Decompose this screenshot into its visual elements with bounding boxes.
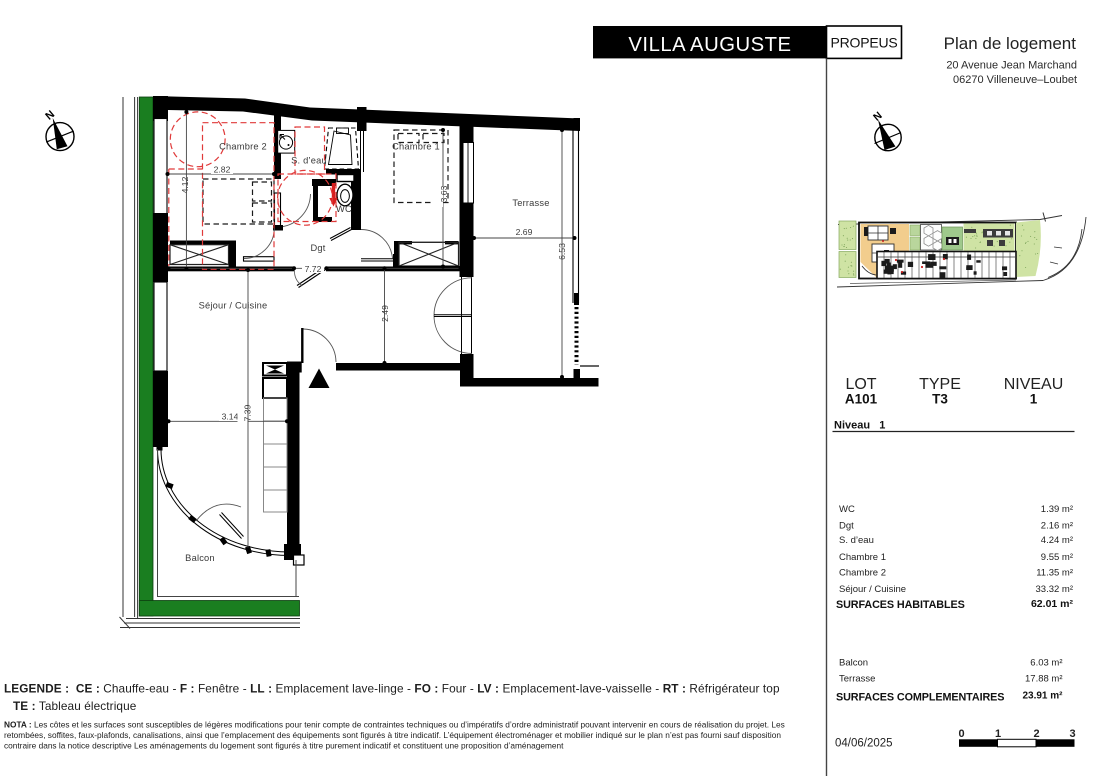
svg-text:2.82: 2.82 (214, 165, 231, 175)
svg-text:S. d’eau: S. d’eau (839, 535, 874, 546)
svg-text:2: 2 (1033, 728, 1039, 740)
svg-text:N: N (871, 110, 885, 124)
svg-text:SURFACES HABITABLES: SURFACES HABITABLES (836, 599, 965, 611)
svg-text:23.91 m²: 23.91 m² (1022, 691, 1063, 702)
svg-text:2.49: 2.49 (380, 305, 390, 322)
svg-text:1.39 m²: 1.39 m² (1041, 504, 1073, 515)
svg-text:62.01 m²: 62.01 m² (1031, 598, 1074, 610)
svg-text:06270 Villeneuve–Loubet: 06270 Villeneuve–Loubet (953, 74, 1077, 86)
svg-text:Plan de logement: Plan de logement (944, 34, 1077, 53)
svg-text:NIVEAU: NIVEAU (1004, 376, 1064, 393)
svg-text:11.35 m²: 11.35 m² (1036, 568, 1073, 579)
svg-text:Terrasse: Terrasse (512, 198, 549, 208)
svg-text:Dgt: Dgt (310, 243, 325, 253)
svg-text:SURFACES COMPLEMENTAIRES: SURFACES COMPLEMENTAIRES (836, 692, 1004, 704)
svg-text:Séjour / Cuisine: Séjour / Cuisine (839, 584, 906, 595)
svg-text:WC: WC (839, 504, 855, 515)
svg-text:Chambre 1: Chambre 1 (392, 142, 440, 152)
svg-text:Balcon: Balcon (185, 553, 215, 563)
svg-text:Séjour / Cuisine: Séjour / Cuisine (199, 301, 268, 311)
svg-text:2.69: 2.69 (516, 227, 533, 237)
svg-text:7.72: 7.72 (305, 264, 322, 274)
svg-text:0: 0 (958, 728, 964, 740)
svg-text:A101: A101 (845, 392, 878, 407)
svg-text:WC: WC (336, 204, 352, 214)
svg-text:Niveau 1: Niveau 1 (834, 420, 885, 432)
svg-text:T3: T3 (932, 392, 948, 407)
svg-text:7.39: 7.39 (243, 404, 253, 421)
svg-text:Chambre 2: Chambre 2 (219, 142, 267, 152)
svg-text:LOT: LOT (845, 376, 876, 393)
svg-text:2.16 m²: 2.16 m² (1041, 520, 1073, 531)
svg-text:PROPEUS: PROPEUS (830, 35, 897, 51)
svg-text:Chambre 1: Chambre 1 (839, 552, 886, 563)
svg-text:20 Avenue Jean Marchand: 20 Avenue Jean Marchand (946, 60, 1077, 72)
svg-text:NOTA : Les côtes et les surfac: NOTA : Les côtes et les surfaces sont su… (4, 720, 785, 730)
svg-text:1: 1 (1030, 392, 1038, 407)
svg-text:Dgt: Dgt (839, 520, 854, 531)
svg-text:LEGENDE : CE : Chauffe-eau -: LEGENDE : CE : Chauffe-eau - F : Fenêtre… (4, 682, 780, 696)
svg-text:S. d’eau: S. d’eau (291, 156, 327, 166)
svg-text:3.63: 3.63 (439, 185, 449, 202)
svg-text:TYPE: TYPE (919, 376, 961, 393)
svg-text:retombées, soffites, faux-plaf: retombées, soffites, faux-plafonds, cana… (4, 730, 781, 740)
svg-text:6.03 m²: 6.03 m² (1030, 658, 1062, 669)
svg-text:3: 3 (1069, 728, 1075, 740)
svg-text:TE : Tableau électrique: TE : Tableau électrique (13, 699, 137, 713)
svg-text:9.55 m²: 9.55 m² (1041, 552, 1073, 563)
svg-text:Balcon: Balcon (839, 658, 868, 669)
svg-text:Chambre 2: Chambre 2 (839, 568, 886, 579)
svg-text:Terrasse: Terrasse (839, 674, 875, 685)
svg-text:33.32 m²: 33.32 m² (1036, 584, 1074, 595)
svg-text:N: N (43, 108, 57, 122)
svg-text:VILLA AUGUSTE: VILLA AUGUSTE (628, 34, 791, 56)
svg-text:1: 1 (995, 728, 1001, 740)
svg-text:4.12: 4.12 (180, 176, 190, 193)
svg-text:4.24 m²: 4.24 m² (1041, 535, 1073, 546)
svg-text:3.14: 3.14 (222, 412, 239, 422)
svg-text:04/06/2025: 04/06/2025 (835, 738, 893, 750)
svg-text:6.53: 6.53 (557, 243, 567, 260)
svg-text:17.88 m²: 17.88 m² (1025, 674, 1063, 685)
svg-text:contraire dans la notice descr: contraire dans la notice descriptive Les… (4, 741, 564, 751)
